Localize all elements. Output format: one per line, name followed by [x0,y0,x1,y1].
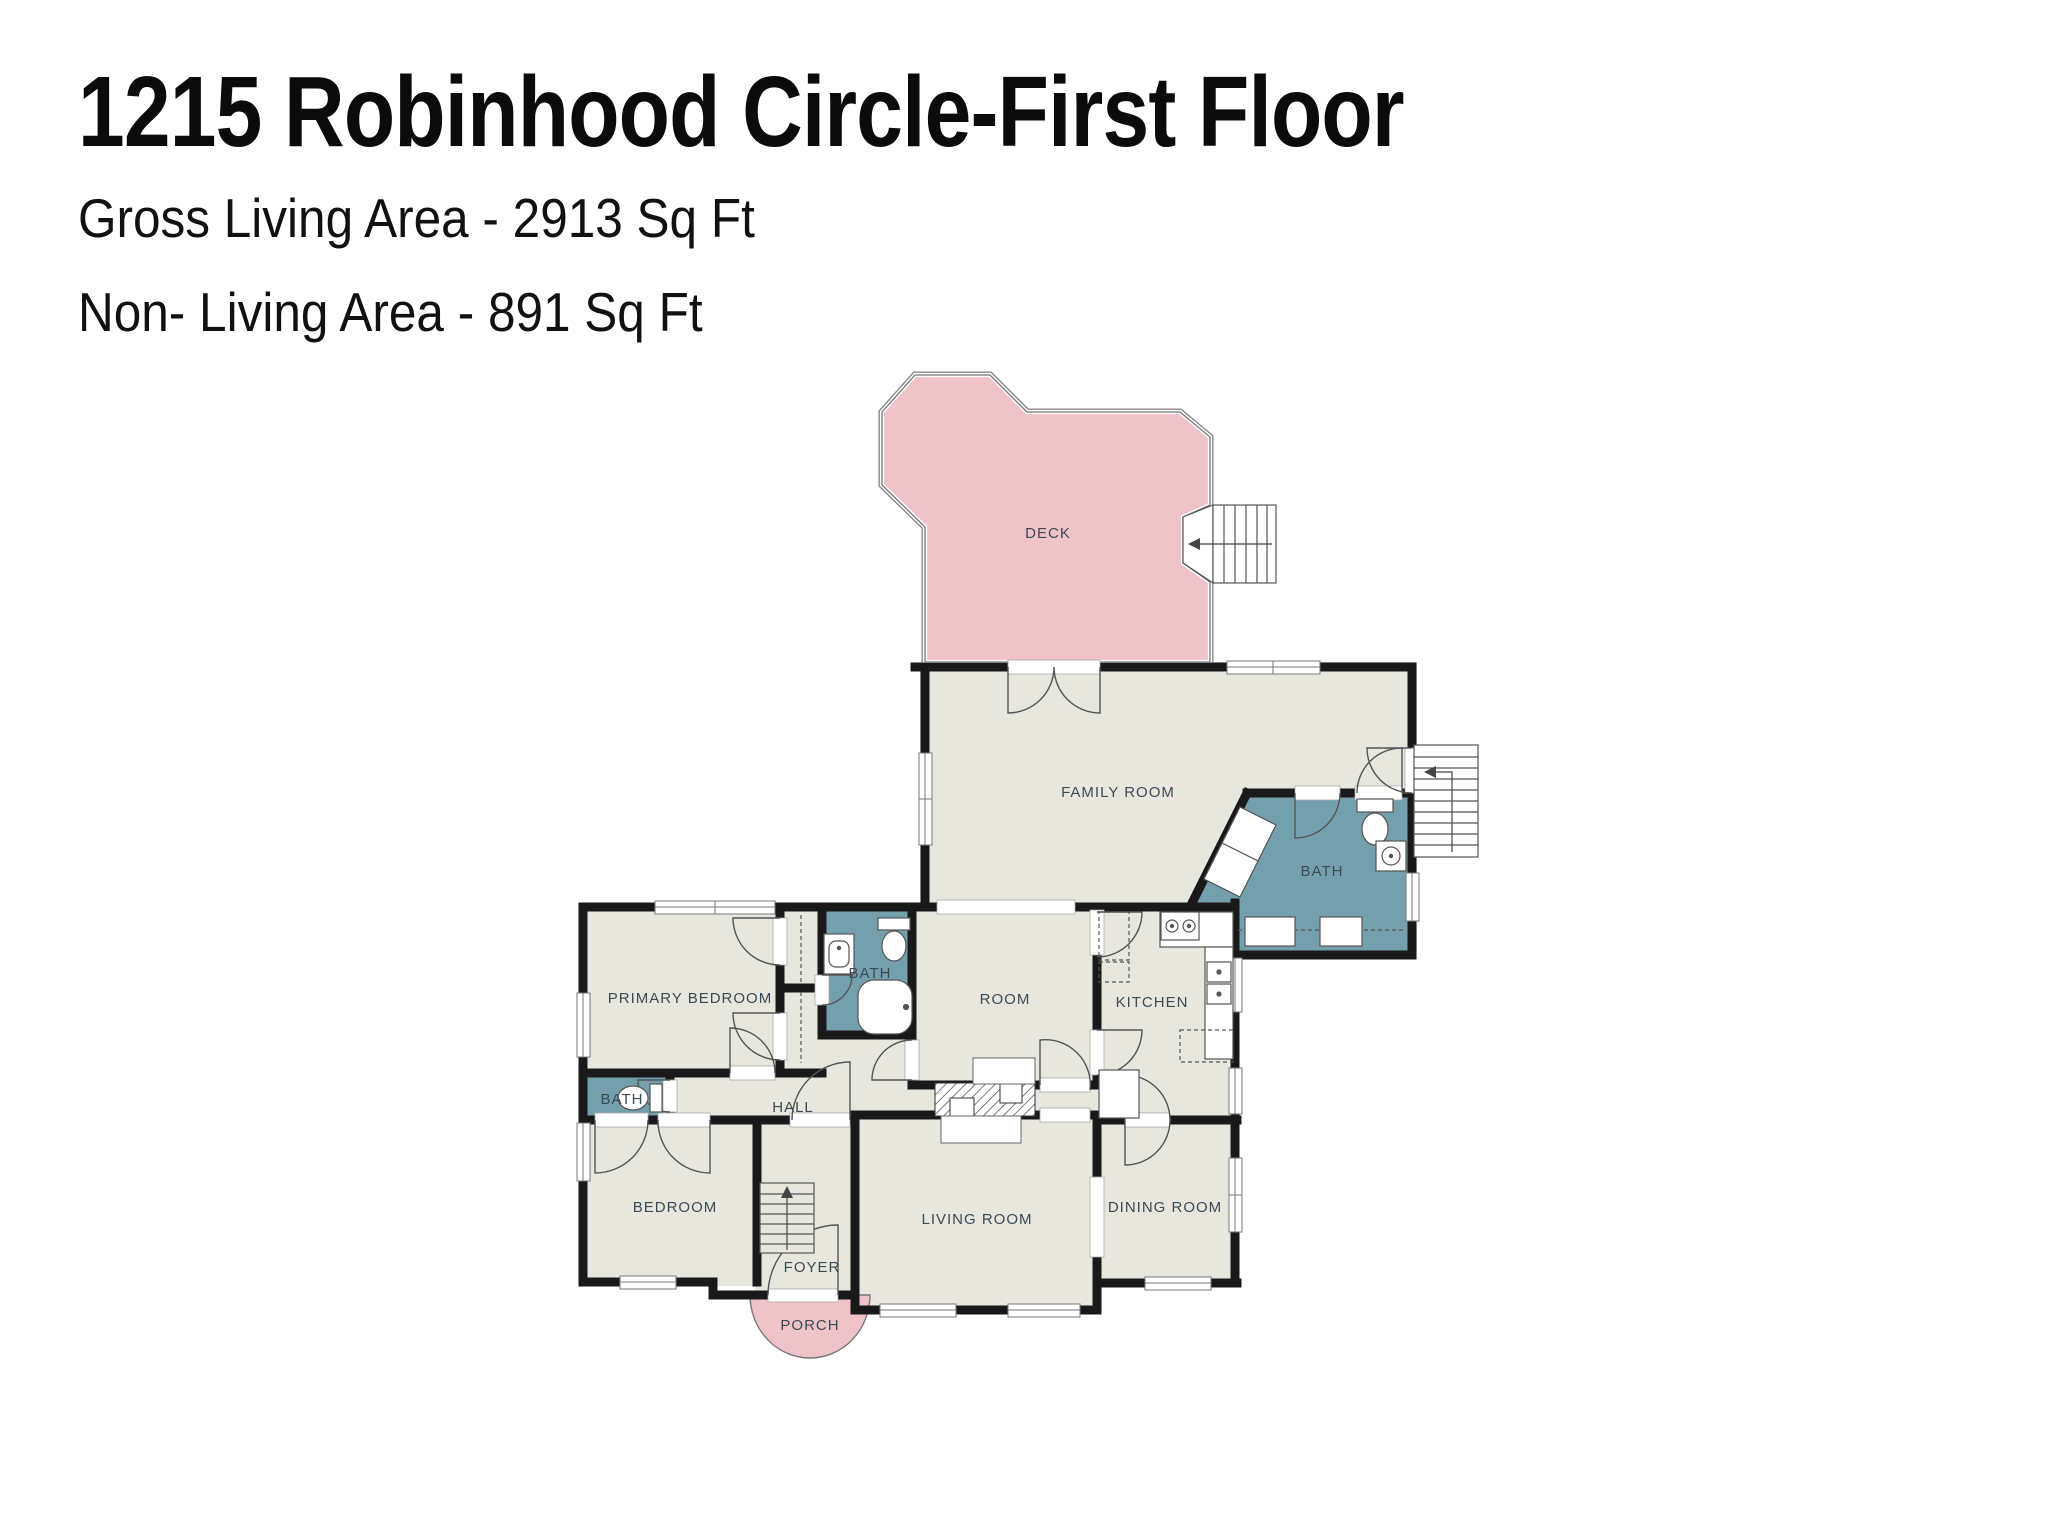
label-dining-room: DINING ROOM [1108,1199,1222,1216]
built-in-cabinet [973,1058,1035,1084]
label-bath-right: BATH [1301,863,1344,880]
window [1145,1277,1211,1290]
window [880,1304,956,1317]
label-bath-small: BATH [601,1091,644,1108]
hearth [941,1116,1021,1143]
window [1008,1304,1080,1317]
window [1229,1068,1242,1114]
room-deck [882,375,1210,662]
window [620,1276,676,1289]
label-bedroom: BEDROOM [633,1199,718,1216]
window [919,753,932,845]
floor-plan: DECK FAMILY ROOM BATH PRIMARY BEDROOM BA… [0,0,2048,1536]
bathtub-icon [858,980,912,1034]
vanity [1245,917,1295,946]
label-family-room: FAMILY ROOM [1061,784,1175,801]
window [655,901,775,914]
foyer-stairs [760,1183,814,1253]
sink-icon [1376,841,1406,871]
window [1406,873,1419,921]
window [577,1123,590,1181]
label-deck: DECK [1025,525,1071,542]
label-room: ROOM [980,991,1031,1008]
window [1229,1158,1242,1232]
floor-plan-page: { "header": { "title": "1215 Robinhood C… [0,0,2048,1536]
label-bath-middle: BATH [849,965,892,982]
fireplace [935,1083,1035,1143]
stove-icon [1161,912,1199,940]
window [1227,661,1320,674]
window [577,993,590,1057]
label-primary-bedroom: PRIMARY BEDROOM [608,990,772,1007]
label-kitchen: KITCHEN [1116,994,1189,1011]
side-stairs [1414,745,1478,857]
vanity [1320,917,1362,946]
label-living-room: LIVING ROOM [921,1211,1032,1228]
label-porch: PORCH [780,1317,839,1334]
refrigerator-icon [1099,1070,1139,1118]
deck-stairs [1183,505,1276,583]
label-foyer: FOYER [784,1259,841,1276]
label-hall: HALL [772,1099,814,1116]
